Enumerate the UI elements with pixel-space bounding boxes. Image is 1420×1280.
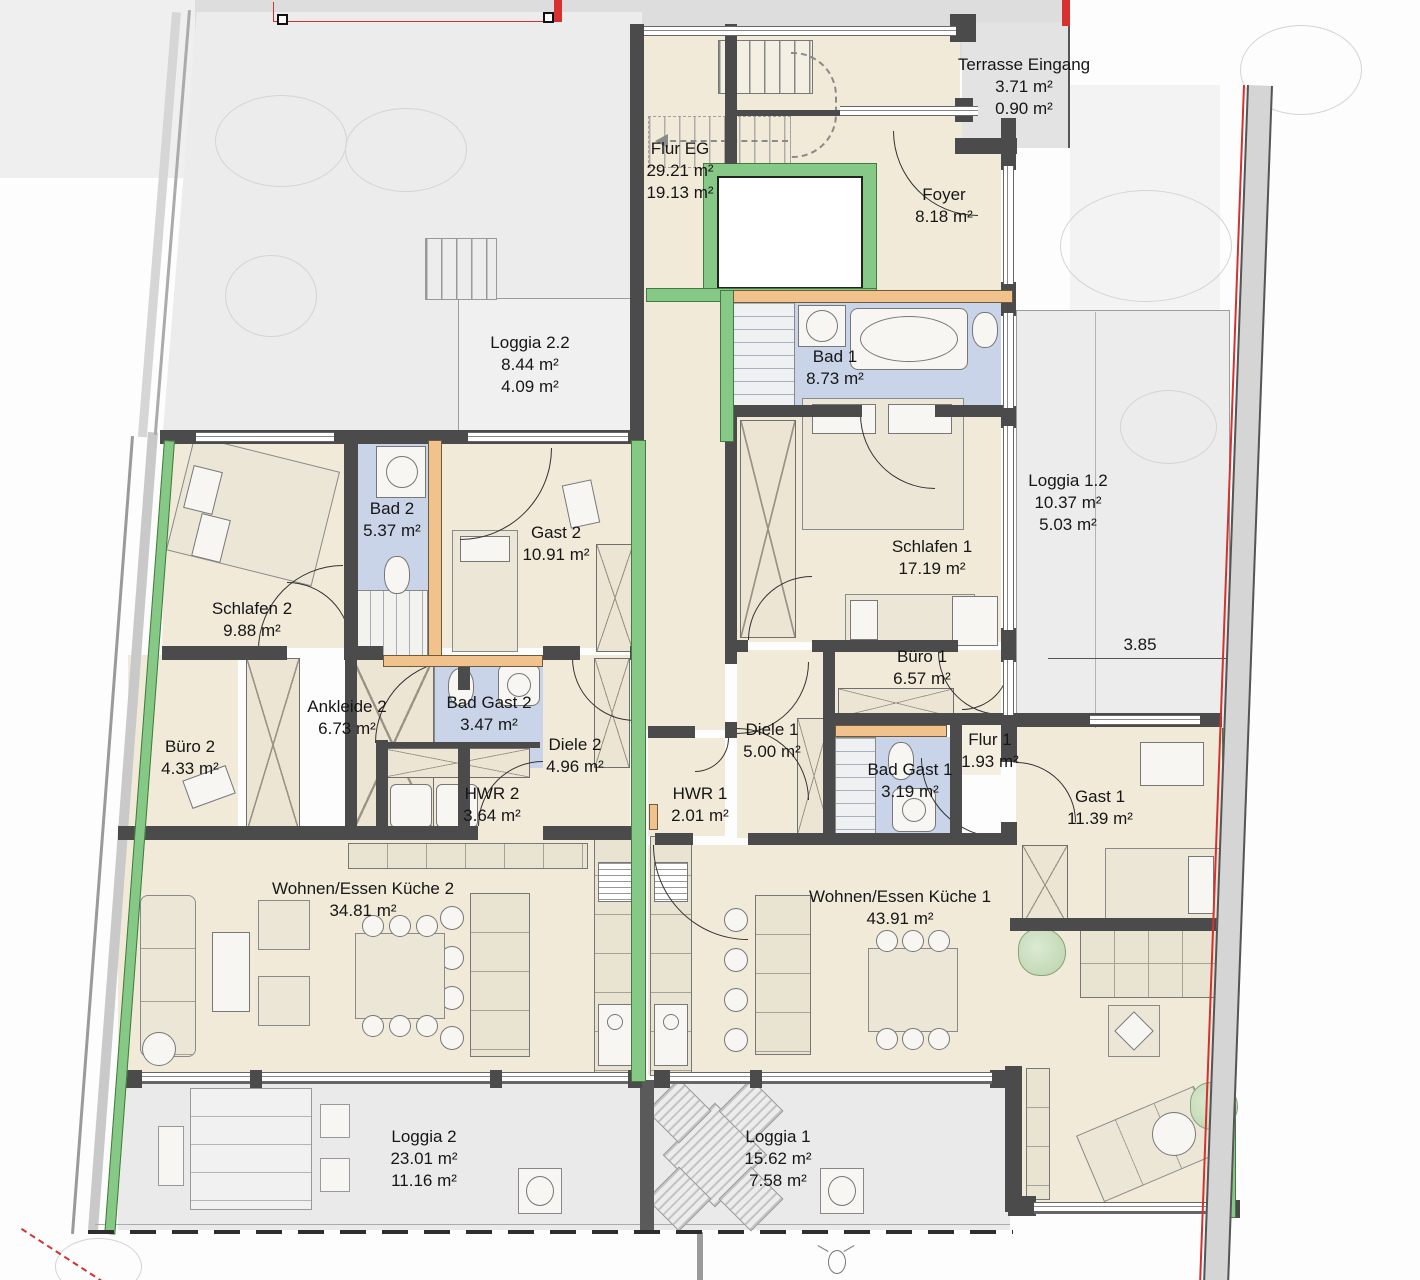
room-label-buero-2: Büro 2 4.33 m² <box>110 736 270 780</box>
room-label-bad-gast-1: Bad Gast 1 3.19 m² <box>830 759 990 803</box>
wall-bad-2-left <box>344 432 358 660</box>
chair <box>902 1028 924 1050</box>
boundary-marker-square <box>543 12 554 23</box>
desk-buero-1 <box>952 596 998 646</box>
chair <box>928 1028 950 1050</box>
sofa <box>140 895 196 1057</box>
boundary-marker-square <box>277 14 288 25</box>
window-bad-1 <box>1003 313 1014 408</box>
dimension-line <box>1048 658 1248 659</box>
dining-table-2 <box>355 933 445 1019</box>
cabinet-row <box>1080 928 1218 998</box>
wall-schlafen-2-bottom <box>162 646 287 660</box>
bar-stool <box>440 1026 464 1050</box>
tree-sketch <box>1060 190 1232 302</box>
wall-bad-1-bottom <box>725 405 862 417</box>
floor-plan: Flur EG 29.21 m² 19.13 m² Terrasse Einga… <box>0 0 1420 1280</box>
room-label-hwr-2: HWR 2 3.64 m² <box>412 783 572 827</box>
tree-sketch <box>225 255 317 337</box>
room-label-flur-eg: Flur EG 29.21 m² 19.13 m² <box>600 138 760 203</box>
wall-diele-1-vert <box>725 652 737 658</box>
side-table-round <box>1152 1112 1196 1156</box>
window <box>196 432 334 442</box>
wall-gast-2-bottom <box>543 646 580 660</box>
insect-antenna <box>843 1245 854 1252</box>
bed-pillow <box>850 600 878 640</box>
wall-unit2-bottom <box>543 826 642 840</box>
room-label-loggia-2: Loggia 2 23.01 m² 11.16 m² <box>344 1126 504 1191</box>
sink-bowl <box>607 1014 623 1030</box>
loggia-2-bench <box>158 1126 184 1186</box>
wall-pier <box>990 1070 1006 1088</box>
wall-gast-1-left <box>1001 822 1017 845</box>
wall-corridor-left <box>630 24 644 442</box>
sideboard-wohnen-2 <box>348 843 588 869</box>
dimension-label: 3.85 <box>1100 634 1180 656</box>
room-label-wohnen-1: Wohnen/Essen Küche 1 43.91 m² <box>760 886 1040 930</box>
wall-unit2-bottom <box>118 826 478 840</box>
wall-wood-bad-1-top <box>733 290 1013 303</box>
room-label-buero-1: Büro 1 6.57 m² <box>842 646 1002 690</box>
wall-wood-bad-2-right <box>428 440 442 656</box>
window-wohnen-2 <box>502 1072 628 1084</box>
wall-schlafen-1-left <box>725 413 737 660</box>
room-label-gast-1: Gast 1 11.39 m² <box>1020 786 1180 830</box>
wall-pier <box>250 1070 262 1088</box>
room-label-hwr-1: HWR 1 2.01 m² <box>620 783 780 827</box>
wall-pier <box>126 1070 142 1088</box>
terrace-stair <box>425 238 497 300</box>
wall-wood-bad-gast-2-top <box>383 655 543 667</box>
wall-gast-1-bottom <box>1010 918 1222 931</box>
dining-table-1 <box>868 948 958 1032</box>
chair <box>416 1015 438 1037</box>
plant-bush <box>1018 928 1066 976</box>
room-label-diele-1: Diele 1 5.00 m² <box>692 719 852 763</box>
chair <box>362 1015 384 1037</box>
armchair <box>258 976 310 1026</box>
wall-extension-left <box>1005 1066 1022 1212</box>
boundary-red-rect-top <box>273 2 558 22</box>
room-label-bad-1: Bad 1 8.73 m² <box>755 346 915 390</box>
planter-pot <box>526 1176 554 1206</box>
wall-schlafen-1-bottom <box>725 640 748 652</box>
loggia-edge-line <box>95 1224 1010 1225</box>
loggia-edge-dashed-line <box>88 1230 1013 1234</box>
chair <box>928 930 950 952</box>
boundary-red-tick <box>554 0 562 22</box>
room-label-terrasse-eingang: Terrasse Eingang 3.71 m² 0.90 m² <box>944 54 1104 119</box>
room-label-foyer: Foyer 8.18 m² <box>864 184 1024 228</box>
shelf-extension <box>1026 1068 1050 1200</box>
coffee-table <box>212 932 250 1012</box>
loggia-2-table <box>190 1088 312 1210</box>
toilet <box>972 312 998 348</box>
window-wohnen-2 <box>262 1072 490 1084</box>
sink-bowl <box>806 310 838 342</box>
room-label-schlafen-2: Schlafen 2 9.88 m² <box>172 598 332 642</box>
loggia-door-band <box>1003 660 1014 715</box>
wall-hwr-1-top <box>648 726 695 738</box>
sink-bowl <box>663 1014 679 1030</box>
room-label-diele-2: Diele 2 4.96 m² <box>495 734 655 778</box>
room-label-gast-2: Gast 2 10.91 m² <box>476 522 636 566</box>
wall-pier <box>490 1070 502 1088</box>
window-wohnen-1 <box>670 1072 750 1084</box>
pouf <box>142 1032 176 1066</box>
wall-loggia-divider <box>640 1080 654 1232</box>
insect-antenna <box>817 1245 828 1252</box>
wall-unit1-mid <box>655 833 693 845</box>
wall-corner <box>1008 1196 1036 1216</box>
room-label-schlafen-1: Schlafen 1 17.19 m² <box>852 536 1012 580</box>
wall-buero-1-top-end <box>1001 640 1013 652</box>
bar-stool <box>724 988 748 1012</box>
cooktop-2 <box>598 862 632 902</box>
tree-sketch <box>1120 390 1217 464</box>
room-label-loggia-1: Loggia 1 15.62 m² 7.58 m² <box>698 1126 858 1191</box>
window-stair-top <box>644 26 956 36</box>
bar-stool <box>724 1028 748 1052</box>
room-label-loggia-1-2: Loggia 1.2 10.37 m² 5.03 m² <box>988 470 1148 535</box>
wall-right-exterior <box>1001 118 1016 170</box>
desk-gast-1 <box>1140 742 1204 786</box>
wall-hwr-2-left <box>376 740 388 840</box>
chair <box>876 1028 898 1050</box>
boundary-red-tick <box>1062 0 1070 26</box>
wall-bad-1-bottom <box>935 405 1013 417</box>
wall-green-bad-1-left <box>720 290 734 442</box>
tree-sketch <box>345 108 467 192</box>
wall-pier <box>750 1070 762 1088</box>
sink-bowl <box>386 456 418 488</box>
window <box>468 432 628 442</box>
wall-pier <box>654 1070 670 1088</box>
chair <box>876 930 898 952</box>
window-gast-1-top <box>1090 715 1200 725</box>
wall-ankleide-left <box>345 655 357 838</box>
room-label-loggia-2-2: Loggia 2.2 8.44 m² 4.09 m² <box>450 332 610 397</box>
window-extension-bottom <box>1034 1202 1214 1214</box>
wall-foyer-top <box>737 110 841 116</box>
path-divider-line <box>697 1232 703 1280</box>
chair <box>902 930 924 952</box>
chair <box>389 1015 411 1037</box>
toilet <box>384 556 410 594</box>
insect-sketch <box>828 1250 846 1274</box>
bed-pillow <box>1188 856 1214 914</box>
room-label-wohnen-2: Wohnen/Essen Küche 2 34.81 m² <box>223 878 503 922</box>
room-label-bad-gast-2: Bad Gast 2 3.47 m² <box>409 692 569 736</box>
wall-unit1-mid <box>748 833 1013 845</box>
window-wohnen-2 <box>142 1072 250 1084</box>
bar-stool <box>724 948 748 972</box>
tree-sketch <box>215 95 347 187</box>
room-label-ankleide-2: Ankleide 2 6.73 m² <box>267 696 427 740</box>
window-wohnen-1 <box>762 1072 992 1084</box>
room-label-bad-2: Bad 2 5.37 m² <box>312 498 472 542</box>
